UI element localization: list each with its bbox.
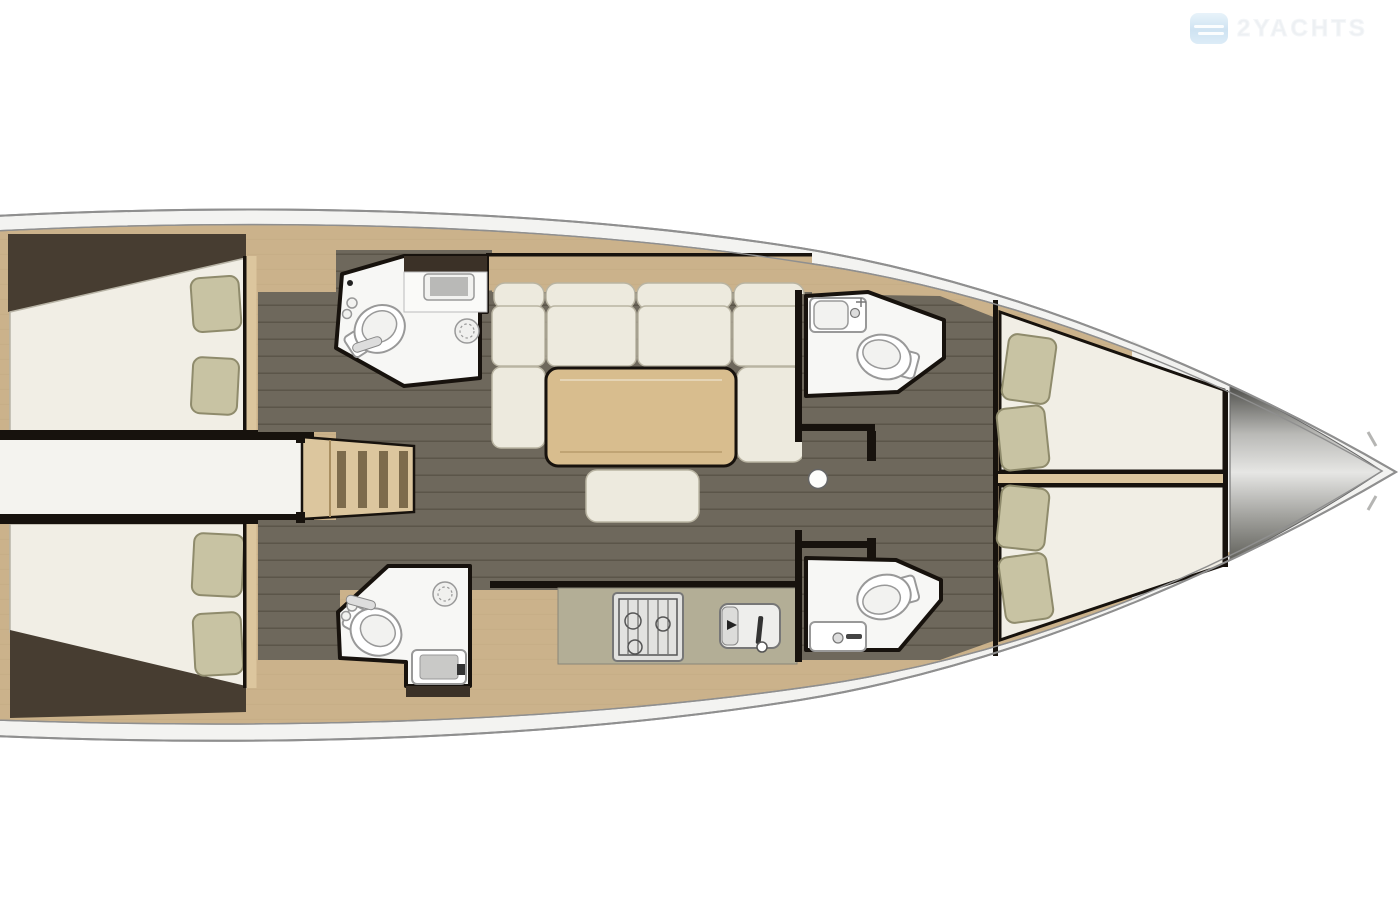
bed-head-wall [243, 256, 247, 432]
sofa-back-cushion [546, 283, 635, 309]
aft-corridor [0, 430, 314, 524]
floor-planks [258, 292, 336, 432]
pillow [192, 612, 243, 676]
stair-jamb [296, 512, 305, 523]
brand-watermark: 2YACHTS [1190, 13, 1368, 44]
sink-basin [814, 301, 848, 329]
vanity-back [406, 686, 470, 697]
divider-line [998, 471, 1226, 474]
sofa-side-cushion [492, 367, 545, 448]
yacht-floor-plan-canvas: 2YACHTS [0, 0, 1400, 900]
corridor-wall [797, 424, 875, 431]
faucet [833, 633, 843, 643]
corridor-floor [0, 440, 314, 514]
sink-basin [430, 277, 468, 296]
sofa-back-cushion [637, 283, 732, 309]
stair-tread [358, 451, 367, 508]
bedside-deck [247, 256, 257, 432]
flush-knob [342, 612, 351, 621]
pillow [996, 485, 1050, 552]
saloon-bulkhead [795, 290, 802, 442]
flush-knob [347, 298, 357, 308]
pillow [998, 552, 1055, 624]
faucet [457, 664, 465, 675]
aft-cabin-port [8, 234, 257, 432]
sofa-back-cushion [734, 283, 804, 309]
bed-divider [998, 473, 1226, 483]
sofa-back-cushion [494, 283, 544, 309]
stair-tread [337, 451, 346, 508]
companionway-stairs [296, 432, 414, 523]
sofa-seat-cushion [733, 306, 804, 366]
yacht-floor-plan [0, 0, 1400, 900]
hull-seam [1368, 432, 1376, 446]
sofa-seat-cushion [492, 306, 545, 366]
sink-basin [420, 655, 458, 679]
sofa-seat-cushion [547, 306, 636, 366]
bed-head-wall [243, 524, 247, 688]
vanity-back [404, 256, 487, 272]
stair-tread [399, 451, 408, 508]
stove [613, 593, 683, 661]
bench-seat [586, 470, 699, 522]
shower-drain [433, 582, 457, 606]
waves-logo-icon [1190, 13, 1228, 44]
dining-table [546, 368, 736, 466]
sofa-side-cushion [737, 367, 804, 462]
forepeak-bulkhead [1223, 390, 1228, 567]
sofa-seat-cushion [638, 306, 731, 366]
pillow [190, 275, 242, 332]
brand-text: 2YACHTS [1237, 15, 1368, 43]
anchor-locker [1230, 385, 1382, 560]
aft-cabin-starboard [10, 524, 257, 718]
door-hinge [347, 280, 353, 286]
stair-tread [379, 451, 388, 508]
stair-jamb [296, 432, 305, 443]
hull-seam [1368, 496, 1376, 510]
shower-drain [455, 319, 479, 343]
door-jamb [867, 431, 876, 461]
pillow [191, 357, 240, 415]
floor-planks [258, 520, 340, 660]
pillow [191, 533, 244, 598]
faucet [851, 309, 860, 318]
pillow [996, 405, 1050, 472]
mast-post [809, 470, 828, 489]
divider-line [998, 483, 1226, 486]
galley-back-wall [490, 581, 797, 588]
flush-knob [343, 310, 352, 319]
bedside-deck [247, 524, 257, 688]
galley-sink [720, 604, 780, 652]
pillow [1001, 333, 1058, 405]
saloon-bulkhead [795, 530, 802, 662]
cabin-bulkhead [993, 300, 998, 656]
bow [1223, 385, 1382, 567]
corridor-wall [797, 541, 875, 548]
tap-handle [846, 634, 862, 639]
forward-cabin [993, 300, 1226, 656]
